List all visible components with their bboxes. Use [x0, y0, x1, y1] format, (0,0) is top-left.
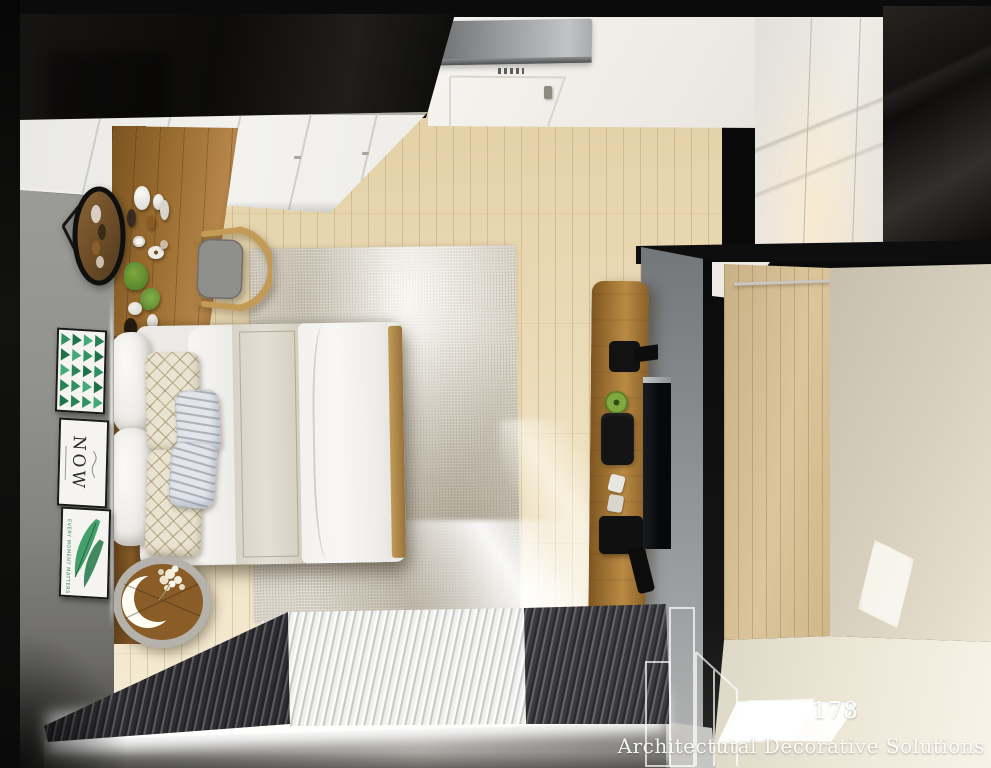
- wardrobe-handle: [294, 156, 301, 159]
- art-frame-leaves: EVERY MOMENT MATTERS: [59, 506, 111, 599]
- script-squiggle: [90, 448, 101, 479]
- decor-cup: [160, 240, 168, 249]
- door-left-edge: [449, 77, 451, 127]
- chair-shape: [196, 230, 271, 308]
- cabinet-seam: [803, 18, 812, 247]
- decor-vase: [160, 200, 169, 220]
- hall-wall: [830, 264, 991, 642]
- flower-side-table: [112, 554, 212, 648]
- succulent-plant: [605, 391, 628, 414]
- mirror-shape: [63, 189, 123, 283]
- side-table-shape: [117, 560, 207, 644]
- triangle-art: [57, 330, 105, 413]
- now-text: NOW: [68, 434, 89, 490]
- curtain-sheer-middle: [288, 606, 526, 726]
- chair: [190, 222, 272, 316]
- decor-pot: [128, 302, 142, 315]
- dark-wardrobe: [883, 6, 991, 247]
- bedroom-topdown-render: NOW EVERY MOMENT MATTERS 178 Architectut…: [0, 0, 991, 768]
- wardrobe-handle: [362, 152, 369, 155]
- triangle-grid: [60, 333, 105, 409]
- hall-cabinet: [755, 18, 885, 247]
- tv: [643, 378, 671, 549]
- hall-wood-panel-wall: [724, 264, 830, 640]
- sill-shadow: [44, 752, 670, 768]
- cabinet-seam: [852, 18, 861, 247]
- leaf-shapes: [74, 518, 104, 589]
- wall-mirror: [58, 184, 128, 288]
- watermark-number: 178: [812, 698, 859, 724]
- decor-bottle: [127, 209, 136, 227]
- bed-runner-blanket: [232, 323, 306, 564]
- watermark-brand: Architectutal Decorative Solutions: [618, 734, 985, 758]
- led-strip: [110, 296, 113, 628]
- decor-bottle: [147, 216, 155, 229]
- dark-ceiling-wardrobe: [18, 14, 455, 127]
- wardrobe-door-seam: [288, 114, 312, 212]
- frame-left-edge: [0, 0, 20, 768]
- now-underline: [65, 445, 67, 479]
- air-conditioner-vent: [498, 68, 524, 74]
- art-frame-now: NOW: [57, 417, 109, 508]
- air-conditioner: [436, 19, 593, 66]
- tv-top-edge: [643, 377, 671, 383]
- pillow-wave: [168, 440, 218, 509]
- black-tray-shelf: [601, 413, 634, 465]
- now-art-content: NOW: [65, 434, 101, 491]
- door-handle: [544, 86, 552, 99]
- remote-control-2: [607, 494, 625, 513]
- art-frame-triangles: [55, 327, 107, 414]
- decor-vase: [134, 186, 150, 210]
- decor-cup: [133, 236, 145, 247]
